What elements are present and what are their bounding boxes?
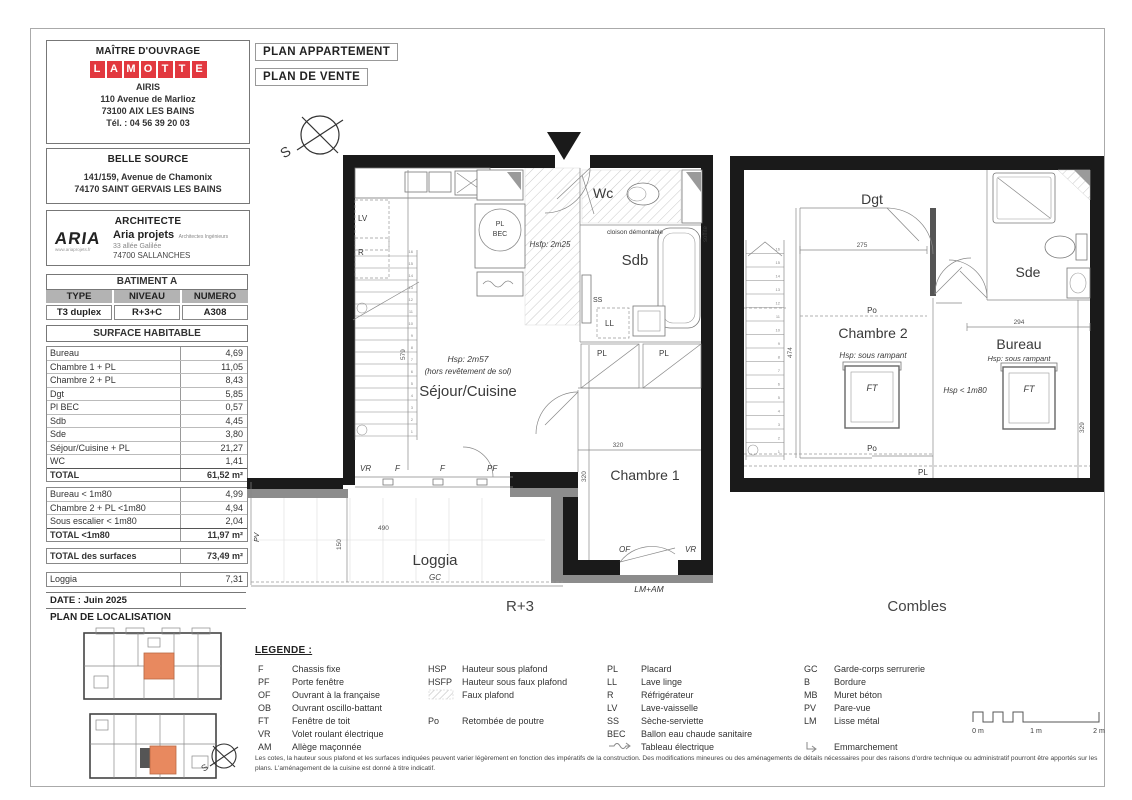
- pl-label: PL: [918, 468, 928, 477]
- dim-474: 474: [787, 347, 794, 358]
- chambre2-hsp-label: Hsp: sous rampant: [839, 351, 907, 360]
- batiment-title: BATIMENT A: [46, 274, 248, 290]
- footnote: Les cotes, la hauteur sous plafond et le…: [255, 754, 1107, 774]
- table-row: Dgt5,85: [47, 387, 247, 401]
- svg-text:8: 8: [778, 355, 781, 360]
- sdb-label: Sdb: [622, 252, 649, 269]
- program-addr2: 74170 SAINT GERVAIS LES BAINS: [47, 183, 249, 195]
- svg-text:12: 12: [409, 297, 414, 302]
- highlighted-unit: [144, 653, 174, 679]
- chambre2-label: Chambre 2: [838, 325, 907, 341]
- svg-text:5: 5: [778, 395, 781, 400]
- table-row: Chambre 1 + PL11,05: [47, 360, 247, 374]
- hsp180-label: Hsp < 1m80: [943, 386, 987, 395]
- owner-name: AIRIS: [47, 81, 249, 93]
- f1-label: F: [395, 464, 401, 473]
- legend: LEGENDE : FChassis fixe PFPorte fenêtre …: [255, 645, 1110, 656]
- batiment-headers: TYPE NIVEAU NUMERO: [46, 290, 248, 303]
- svg-text:14: 14: [409, 273, 414, 278]
- surface-under-table: Bureau < 1m804,99 Chambre 2 + PL <1m804,…: [46, 487, 248, 542]
- chambre1-label: Chambre 1: [610, 467, 679, 483]
- staircase: 12345678910111213141516: [746, 247, 784, 457]
- localisation-label: PLAN DE LOCALISATION: [50, 612, 171, 623]
- plan-sheet: MAÎTRE D'OUVRAGE L A M O T T E AIRIS 110…: [0, 0, 1132, 800]
- svg-text:12: 12: [776, 301, 781, 306]
- program-addr1: 141/159, Avenue de Chamonix: [47, 171, 249, 183]
- table-row: Bureau4,69: [47, 347, 247, 360]
- batiment-col-type: TYPE: [46, 290, 112, 303]
- svg-text:7: 7: [778, 368, 781, 373]
- batiment-col-niveau: NIVEAU: [114, 290, 180, 303]
- emmarchement-icon: [804, 741, 834, 754]
- logo-letter: T: [158, 61, 173, 78]
- dim-329: 329: [1079, 422, 1086, 433]
- logo-letter: T: [175, 61, 190, 78]
- batiment-values: T3 duplex R+3+C A308: [46, 305, 248, 320]
- svg-text:4: 4: [778, 409, 781, 414]
- plan-appartement-title: PLAN APPARTEMENT: [255, 43, 398, 61]
- logo-letter: L: [90, 61, 105, 78]
- table-row: Séjour/Cuisine + PL21,27: [47, 441, 247, 455]
- table-row: Pl BEC0,57: [47, 400, 247, 414]
- vr-label: VR: [360, 464, 371, 473]
- svg-text:1: 1: [411, 429, 414, 434]
- svg-text:3: 3: [778, 422, 781, 427]
- of-label: OF: [619, 545, 631, 554]
- faux-plafond-hatch-icon: [428, 689, 462, 702]
- svg-text:16: 16: [409, 249, 414, 254]
- pl-bec-label: PL: [496, 221, 505, 228]
- table-row: WC1,41: [47, 454, 247, 468]
- sde-label: Sde: [1016, 264, 1041, 280]
- svg-text:6: 6: [778, 382, 781, 387]
- legend-col1: FChassis fixe PFPorte fenêtre OFOuvrant …: [258, 663, 384, 754]
- plan-de-vente-title: PLAN DE VENTE: [255, 68, 368, 86]
- ss-label: SS: [593, 297, 603, 304]
- lamotte-logo: L A M O T T E: [47, 61, 249, 78]
- svg-text:10: 10: [776, 328, 781, 333]
- vr2-label: VR: [685, 545, 696, 554]
- svg-text:13: 13: [776, 287, 781, 292]
- legend-title: LEGENDE :: [255, 645, 1110, 656]
- svg-text:9: 9: [778, 341, 781, 346]
- scale-bar: 0 m 1 m 2 m: [968, 702, 1113, 736]
- owner-tel: Tél. : 04 56 39 20 03: [47, 117, 249, 129]
- scale-2m: 2 m: [1093, 728, 1105, 735]
- dim-320h: 320: [613, 442, 624, 449]
- date-row: DATE : Juin 2025: [46, 592, 246, 609]
- table-total-row: TOTAL61,52 m²: [47, 468, 247, 482]
- svg-text:4: 4: [411, 393, 414, 398]
- architect-addr2: 74700 SALLANCHES: [113, 251, 243, 260]
- scale-1m: 1 m: [1030, 728, 1042, 735]
- batiment-numero: A308: [182, 305, 248, 320]
- level-label-combles: Combles: [862, 598, 972, 615]
- gc-label: GC: [429, 573, 441, 582]
- svg-text:(hors revêtement de sol): (hors revêtement de sol): [425, 367, 512, 376]
- table-row: Chambre 2 + PL <1m804,94: [47, 501, 247, 515]
- lv-label: LV: [358, 214, 368, 223]
- table-total-row: TOTAL <1m8011,97 m²: [47, 528, 247, 542]
- dim-275: 275: [857, 242, 868, 249]
- aria-logo: ARIA www.ariaprojets.fr: [55, 229, 113, 252]
- dim-150: 150: [336, 539, 343, 550]
- svg-text:16: 16: [776, 247, 781, 252]
- hsfp-label: Hsfp: 2m25: [530, 240, 571, 249]
- loggia-label: Loggia: [412, 552, 458, 569]
- pv-label: PV: [254, 531, 261, 542]
- architect-firm: Aria projets: [113, 229, 174, 241]
- table-row: Sde3,80: [47, 427, 247, 441]
- soffite-label: soffite: [703, 225, 709, 242]
- architect-addr1: 33 allée Galilée: [113, 242, 243, 251]
- tableau-electrique-icon: [607, 741, 641, 754]
- highlighted-unit: [150, 746, 176, 774]
- lmam-label: LM+AM: [634, 584, 664, 594]
- hsp-label: Hsp: 2m57: [447, 354, 488, 364]
- f2-label: F: [440, 464, 446, 473]
- pl2-label: PL: [659, 349, 669, 358]
- svg-text:10: 10: [409, 321, 414, 326]
- batiment-type: T3 duplex: [46, 305, 112, 320]
- table-row: Sous escalier < 1m802,04: [47, 514, 247, 528]
- svg-text:11: 11: [409, 309, 414, 314]
- compass-icon: S: [198, 738, 242, 778]
- owner-title: MAÎTRE D'OUVRAGE: [47, 46, 249, 57]
- owner-addr1: 110 Avenue de Marlioz: [47, 93, 249, 105]
- loggia-row: Loggia7,31: [46, 572, 248, 587]
- batiment-niveau: R+3+C: [114, 305, 180, 320]
- owner-addr2: 73100 AIX LES BAINS: [47, 105, 249, 117]
- logo-letter: A: [107, 61, 122, 78]
- svg-text:6: 6: [411, 369, 414, 374]
- dim-579: 579: [400, 349, 407, 360]
- architect-title: ARCHITECTE: [47, 216, 249, 227]
- svg-text:5: 5: [411, 381, 414, 386]
- cloison-label: cloison démontable: [607, 229, 663, 236]
- legend-col2: HSPHauteur sous plafond HSFPHauteur sous…: [428, 663, 567, 728]
- logo-letter: E: [192, 61, 207, 78]
- surface-grand-total: TOTAL des surfaces73,49 m²: [46, 548, 248, 564]
- svg-text:2: 2: [411, 417, 414, 422]
- dgt-label: Dgt: [861, 191, 883, 207]
- po1-label: Po: [867, 306, 877, 315]
- svg-text:BEC: BEC: [493, 231, 507, 238]
- logo-letter: M: [124, 61, 139, 78]
- aria-logo-mark: ARIA: [54, 229, 115, 249]
- svg-text:8: 8: [411, 345, 414, 350]
- owner-block: MAÎTRE D'OUVRAGE L A M O T T E AIRIS 110…: [46, 40, 250, 144]
- scale-0m: 0 m: [972, 728, 984, 735]
- surface-table: Bureau4,69 Chambre 1 + PL11,05 Chambre 2…: [46, 346, 248, 482]
- svg-text:2: 2: [778, 436, 781, 441]
- floor-plan-r3: 12345678910111213141516 LV R PL BEC Hsfp…: [245, 130, 720, 630]
- dim-320v: 320: [581, 471, 588, 482]
- table-row: Sdb4,45: [47, 414, 247, 428]
- table-row: Chambre 2 + PL8,43: [47, 373, 247, 387]
- fridge-label: R: [358, 248, 364, 257]
- batiment-col-numero: NUMERO: [182, 290, 248, 303]
- sejour-label: Séjour/Cuisine: [419, 383, 517, 400]
- table-row: Bureau < 1m804,99: [47, 488, 247, 501]
- legend-col4: GCGarde-corps serrurerie BBordure MBMure…: [804, 663, 925, 754]
- svg-text:11: 11: [776, 314, 781, 319]
- svg-text:15: 15: [409, 261, 414, 266]
- svg-text:3: 3: [411, 405, 414, 410]
- architect-firm-sub: Architectes Ingénieurs: [179, 234, 228, 240]
- bureau-hsp-label: Hsp: sous rampant: [988, 354, 1052, 363]
- legend-col3: PLPlacard LLLave linge RRéfrigérateur LV…: [607, 663, 752, 754]
- dim-294: 294: [1014, 319, 1025, 326]
- po2-label: Po: [867, 444, 877, 453]
- floor-plan-combles: 12345678910111213141516: [722, 148, 1112, 498]
- ft1-label: FT: [867, 383, 879, 393]
- ft2-label: FT: [1024, 384, 1036, 394]
- logo-letter: O: [141, 61, 156, 78]
- bureau-label: Bureau: [996, 336, 1041, 352]
- svg-text:14: 14: [776, 274, 781, 279]
- pf-label: PF: [487, 464, 498, 473]
- program-block: BELLE SOURCE 141/159, Avenue de Chamonix…: [46, 148, 250, 204]
- localisation-plan-upper: [82, 626, 224, 706]
- pl1-label: PL: [597, 349, 607, 358]
- svg-text:15: 15: [776, 260, 781, 265]
- svg-text:S: S: [199, 762, 210, 774]
- dim-490: 490: [378, 525, 389, 532]
- ll-label: LL: [605, 319, 614, 328]
- svg-text:7: 7: [411, 357, 414, 362]
- program-title: BELLE SOURCE: [47, 154, 249, 165]
- level-label-r3: R+3: [485, 598, 555, 615]
- surface-title: SURFACE HABITABLE: [46, 325, 248, 342]
- architect-block: ARCHITECTE ARIA www.ariaprojets.fr Aria …: [46, 210, 250, 266]
- svg-text:1: 1: [778, 449, 781, 454]
- svg-text:9: 9: [411, 333, 414, 338]
- wc-label: Wc: [593, 185, 613, 201]
